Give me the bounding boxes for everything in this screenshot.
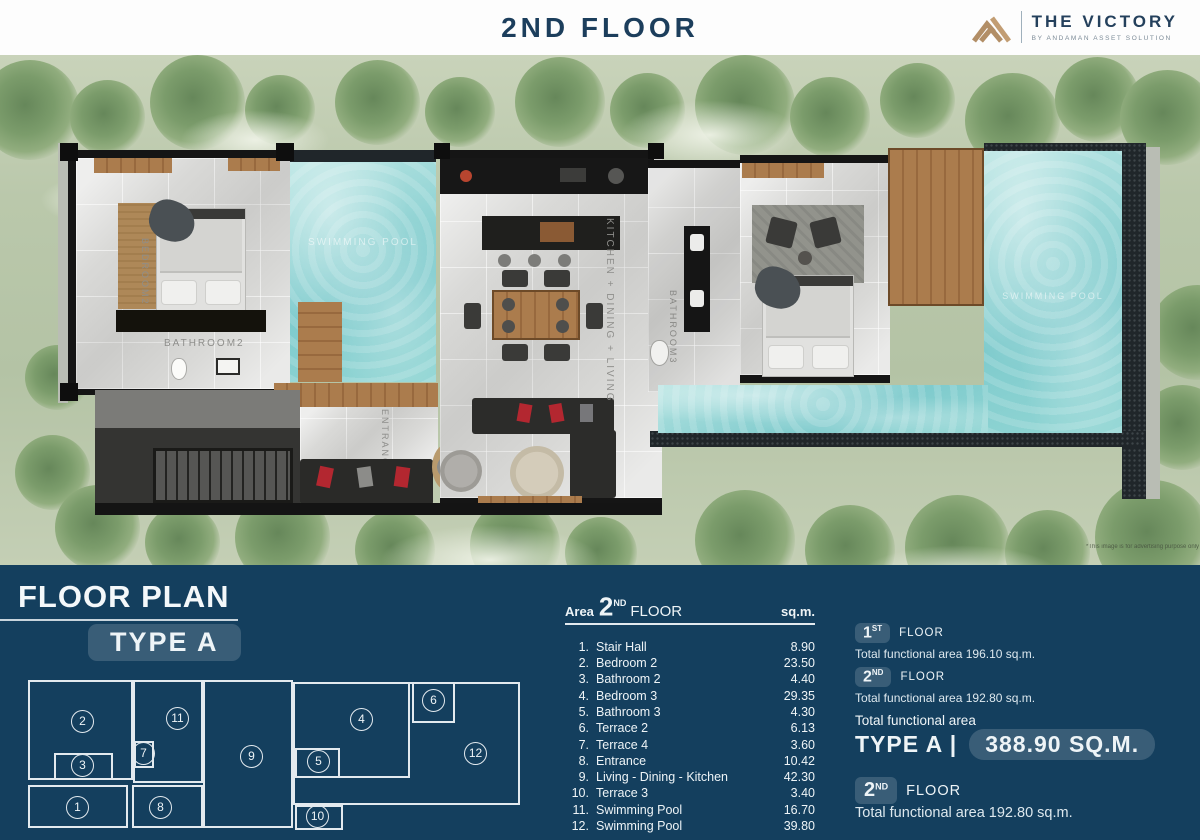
type-badge: TYPE A — [88, 624, 241, 661]
table-row: 8. Entrance 10.42 — [565, 753, 815, 769]
kitchen-island — [482, 216, 620, 250]
row-area: 8.90 — [791, 640, 815, 654]
row-name: Bathroom 2 — [596, 672, 661, 686]
room-number-badge: 8 — [149, 796, 172, 819]
row-number: 10. — [565, 786, 589, 800]
shelf-wood — [228, 158, 280, 171]
row-area: 3.60 — [791, 738, 815, 752]
brand-mark-icon — [971, 10, 1011, 44]
bathroom2-label: BATHROOM2 — [164, 338, 245, 349]
row-number: 2. — [565, 656, 589, 670]
row-number: 4. — [565, 689, 589, 703]
living-sofa — [472, 398, 614, 434]
table-row: 7. Terrace 4 3.60 — [565, 736, 815, 752]
room-number-badge: 1 — [66, 796, 89, 819]
shelf-wood — [94, 158, 172, 173]
row-area: 10.42 — [784, 754, 815, 768]
row-number: 5. — [565, 705, 589, 719]
room-number-badge: 3 — [71, 754, 94, 777]
row-area: 42.30 — [784, 770, 815, 784]
area-table: Area 2ND FLOOR sq.m. 1. Stair Hall 8.90 … — [565, 592, 815, 834]
pool-label: SWIMMING POOL — [984, 291, 1122, 301]
room-number-badge: 6 — [422, 689, 445, 712]
room-number-badge: 10 — [306, 805, 329, 828]
section-title: FLOOR PLAN — [18, 579, 230, 615]
row-number: 3. — [565, 672, 589, 686]
total-value-badge: 388.90 SQ.M. — [969, 729, 1155, 760]
room-number-badge: 7 — [132, 742, 155, 765]
sink — [216, 358, 240, 375]
terrace-deck-large — [888, 148, 984, 306]
row-area: 4.40 — [791, 672, 815, 686]
row-number: 9. — [565, 770, 589, 784]
row-number: 1. — [565, 640, 589, 654]
row-number: 11. — [565, 803, 589, 817]
floor-2-badge: 2ND FLOOR — [855, 667, 945, 687]
room-number-badge: 11 — [166, 707, 189, 730]
swimming-pool-right-arm — [658, 385, 988, 433]
floor-number: 2ND — [599, 592, 626, 618]
table-row: 5. Bathroom 3 4.30 — [565, 704, 815, 720]
bath-vanity — [684, 226, 710, 332]
table-row: 6. Terrace 2 6.13 — [565, 720, 815, 736]
room-bedroom3 — [740, 155, 890, 383]
room-number-badge: 4 — [350, 708, 373, 731]
row-name: Terrace 3 — [596, 786, 648, 800]
brand-tagline: BY ANDAMAN ASSET SOLUTION — [1032, 35, 1178, 42]
table-row: 9. Living - Dining - Kitchen 42.30 — [565, 769, 815, 785]
room-bathroom3: BATHROOM3 — [648, 160, 740, 392]
dining-table — [492, 290, 580, 340]
pool-deck-plank — [298, 302, 342, 382]
header-bar: 2ND FLOOR THE VICTORY BY ANDAMAN ASSET S… — [0, 0, 1200, 55]
bottom-floor-badge: 2ND FLOOR — [855, 777, 961, 804]
row-area: 39.80 — [784, 819, 815, 833]
row-name: Living - Dining - Kitchen — [596, 770, 728, 784]
round-rug-small — [440, 450, 482, 492]
bottom-floor-detail: Total functional area 192.80 sq.m. — [855, 805, 1073, 821]
row-name: Entrance — [596, 754, 646, 768]
stair-hall — [95, 390, 300, 508]
table-row: 11. Swimming Pool 16.70 — [565, 802, 815, 818]
vanity-counter — [116, 310, 266, 332]
room-living-dining-kitchen: KITCHEN + DINING + LIVING — [440, 150, 662, 510]
bed — [762, 275, 854, 377]
swimming-pool-right: SWIMMING POOL — [984, 151, 1122, 433]
disclaimer-note: *This image is for advertising purpose o… — [1086, 544, 1199, 550]
row-area: 16.70 — [784, 803, 815, 817]
kitchen-counter — [440, 158, 654, 194]
table-row: 1. Stair Hall 8.90 — [565, 639, 815, 655]
toilet — [650, 340, 669, 366]
table-row: 4. Bedroom 3 29.35 — [565, 688, 815, 704]
room-number-badge: 12 — [464, 742, 487, 765]
room-bedroom2: BEDROOM2 BATHROOM2 — [68, 150, 290, 395]
console-wood — [742, 163, 824, 178]
brand-name: THE VICTORY — [1032, 12, 1178, 32]
bed — [156, 208, 246, 313]
floor-label: FLOOR — [630, 603, 682, 620]
table-row: 2. Bedroom 2 23.50 — [565, 655, 815, 671]
total-area-label: Total functional area — [855, 713, 976, 728]
unit-label: sq.m. — [781, 604, 815, 619]
info-panel: FLOOR PLAN TYPE A 1 2 3 4 5 6 7 8 9 10 1… — [0, 565, 1200, 840]
brand-logo: THE VICTORY BY ANDAMAN ASSET SOLUTION — [971, 10, 1178, 44]
row-area: 3.40 — [791, 786, 815, 800]
room-number-badge: 5 — [307, 750, 330, 773]
table-row: 10. Terrace 3 3.40 — [565, 785, 815, 801]
row-name: Bedroom 2 — [596, 656, 657, 670]
row-name: Terrace 2 — [596, 721, 648, 735]
round-rug — [510, 446, 564, 500]
row-number: 6. — [565, 721, 589, 735]
row-area: 6.13 — [791, 721, 815, 735]
row-name: Terrace 4 — [596, 738, 648, 752]
row-name: Swimming Pool — [596, 803, 682, 817]
bedroom2-label: BEDROOM2 — [140, 238, 150, 306]
row-name: Swimming Pool — [596, 819, 682, 833]
swimming-pool-left: SWIMMING POOL — [290, 150, 436, 382]
row-area: 23.50 — [784, 656, 815, 670]
floor-2-detail: Total functional area 192.80 sq.m. — [855, 691, 1035, 705]
area-table-rows: 1. Stair Hall 8.90 2. Bedroom 2 23.50 3.… — [565, 639, 815, 835]
logo-divider — [1021, 11, 1022, 43]
total-area-row: TYPE A | 388.90 SQ.M. — [855, 729, 1155, 760]
heading-divider — [0, 619, 238, 621]
total-type-label: TYPE A | — [855, 731, 957, 758]
entrance-hall: ENTRANCE — [300, 407, 438, 465]
table-row: 12. Swimming Pool 39.80 — [565, 818, 815, 834]
room-number-badge: 9 — [240, 745, 263, 768]
area-label: Area — [565, 604, 594, 619]
kitchen-dining-living-label: KITCHEN + DINING + LIVING — [604, 218, 615, 468]
row-name: Bedroom 3 — [596, 689, 657, 703]
wall — [95, 503, 662, 515]
table-row: 3. Bathroom 2 4.40 — [565, 671, 815, 687]
area-table-header: Area 2ND FLOOR sq.m. — [565, 592, 815, 625]
floor-plan-rendering: BEDROOM2 BATHROOM2 SWIMMING POOL ENTRANC… — [0, 55, 1200, 565]
staircase — [153, 448, 293, 503]
walkway-right — [1146, 147, 1160, 499]
walkway-left — [58, 143, 68, 403]
row-number: 12. — [565, 819, 589, 833]
lounge-sofa — [300, 459, 433, 505]
row-number: 8. — [565, 754, 589, 768]
pool-label: SWIMMING POOL — [290, 237, 436, 248]
toilet — [171, 358, 187, 380]
room-number-badge: 2 — [71, 710, 94, 733]
row-number: 7. — [565, 738, 589, 752]
row-area: 4.30 — [791, 705, 815, 719]
floor-1-detail: Total functional area 196.10 sq.m. — [855, 647, 1035, 661]
pool-edge — [650, 431, 1146, 447]
row-name: Bathroom 3 — [596, 705, 661, 719]
row-area: 29.35 — [784, 689, 815, 703]
floor-1-badge: 1ST FLOOR — [855, 623, 944, 643]
row-name: Stair Hall — [596, 640, 647, 654]
bathroom3-label: BATHROOM3 — [668, 290, 678, 364]
